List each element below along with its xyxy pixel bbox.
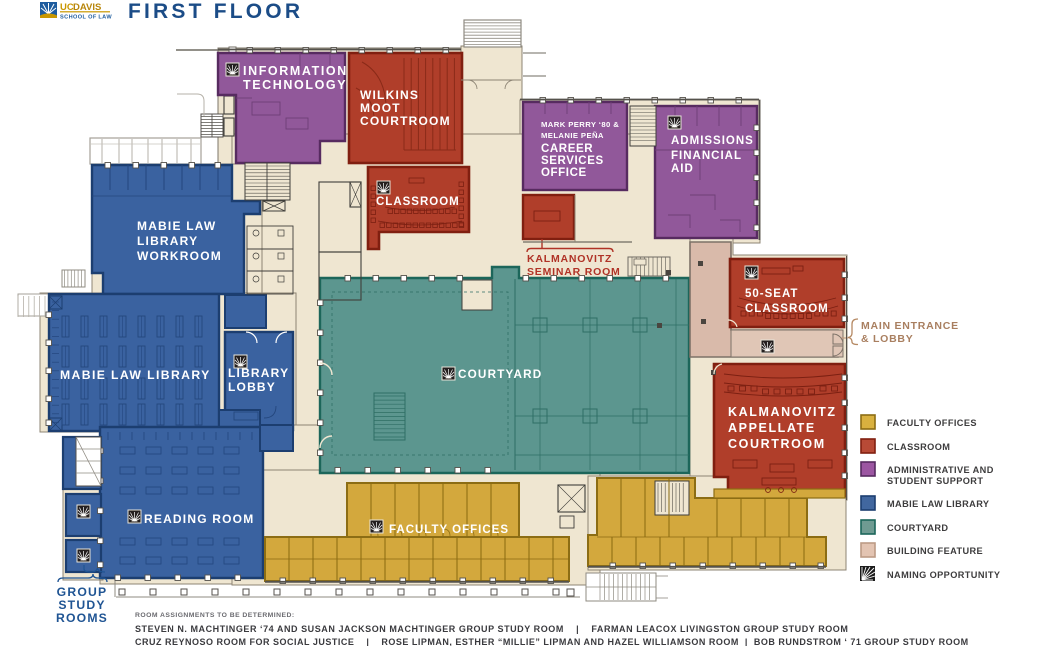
- svg-text:COURTYARD: COURTYARD: [887, 523, 948, 533]
- svg-text:KALMANOVITZ: KALMANOVITZ: [527, 253, 612, 265]
- svg-text:LIBRARY: LIBRARY: [137, 234, 198, 248]
- svg-text:ADMINISTRATIVE AND: ADMINISTRATIVE AND: [887, 465, 994, 475]
- svg-text:FINANCIAL: FINANCIAL: [671, 150, 742, 162]
- svg-text:SERVICES: SERVICES: [541, 155, 604, 167]
- svg-text:OFFICE: OFFICE: [541, 167, 587, 179]
- svg-text:ROOMS: ROOMS: [56, 611, 108, 625]
- svg-text:MABIE LAW LIBRARY: MABIE LAW LIBRARY: [60, 368, 211, 382]
- svg-text:50-SEAT: 50-SEAT: [745, 288, 798, 300]
- svg-text:FACULTY OFFICES: FACULTY OFFICES: [389, 524, 509, 536]
- svg-text:BUILDING FEATURE: BUILDING FEATURE: [887, 546, 983, 556]
- svg-text:NAMING OPPORTUNITY: NAMING OPPORTUNITY: [887, 570, 1000, 580]
- svg-text:FIRST FLOOR: FIRST FLOOR: [128, 0, 303, 23]
- svg-text:LIBRARY: LIBRARY: [228, 366, 289, 380]
- svg-text:SCHOOL OF LAW: SCHOOL OF LAW: [60, 15, 112, 21]
- svg-text:WORKROOM: WORKROOM: [137, 249, 222, 263]
- svg-text:FACULTY OFFICES: FACULTY OFFICES: [887, 418, 977, 428]
- svg-text:MABIE LAW: MABIE LAW: [137, 219, 216, 233]
- svg-text:& LOBBY: & LOBBY: [861, 333, 914, 345]
- svg-text:READING ROOM: READING ROOM: [144, 512, 254, 526]
- svg-text:APPELLATE: APPELLATE: [728, 421, 816, 435]
- svg-text:ROOM ASSIGNMENTS TO BE DETERMI: ROOM ASSIGNMENTS TO BE DETERMINED:: [135, 612, 295, 619]
- svg-text:LOBBY: LOBBY: [228, 380, 276, 394]
- svg-text:STUDENT SUPPORT: STUDENT SUPPORT: [887, 476, 983, 486]
- svg-text:AID: AID: [671, 163, 694, 175]
- svg-text:MAIN ENTRANCE: MAIN ENTRANCE: [861, 320, 959, 332]
- svg-text:WILKINS: WILKINS: [360, 88, 419, 102]
- svg-text:GROUP: GROUP: [57, 585, 108, 599]
- svg-text:TECHNOLOGY: TECHNOLOGY: [243, 78, 347, 92]
- svg-text:ADMISSIONS: ADMISSIONS: [671, 135, 754, 147]
- svg-text:COURTYARD: COURTYARD: [458, 368, 542, 381]
- svg-text:MELANIE PEÑA: MELANIE PEÑA: [541, 131, 604, 140]
- svg-text:MOOT: MOOT: [360, 101, 401, 115]
- svg-text:CAREER: CAREER: [541, 143, 593, 155]
- svg-text:MABIE LAW LIBRARY: MABIE LAW LIBRARY: [887, 499, 989, 509]
- svg-text:MARK PERRY ‘80 &: MARK PERRY ‘80 &: [541, 120, 619, 129]
- svg-text:CRUZ REYNOSO ROOM FOR SOCIAL J: CRUZ REYNOSO ROOM FOR SOCIAL JUSTICE | R…: [135, 637, 969, 646]
- svg-text:CLASSROOM: CLASSROOM: [745, 303, 829, 315]
- svg-text:KALMANOVITZ: KALMANOVITZ: [728, 405, 837, 419]
- svg-text:CLASSROOM: CLASSROOM: [376, 196, 460, 208]
- svg-text:COURTROOM: COURTROOM: [360, 114, 451, 128]
- svg-text:STEVEN N. MACHTINGER ‘74 AND S: STEVEN N. MACHTINGER ‘74 AND SUSAN JACKS…: [135, 624, 848, 634]
- svg-text:INFORMATION: INFORMATION: [243, 64, 348, 78]
- svg-text:STUDY: STUDY: [58, 598, 105, 612]
- svg-text:COURTROOM: COURTROOM: [728, 437, 826, 451]
- svg-text:CLASSROOM: CLASSROOM: [887, 442, 950, 452]
